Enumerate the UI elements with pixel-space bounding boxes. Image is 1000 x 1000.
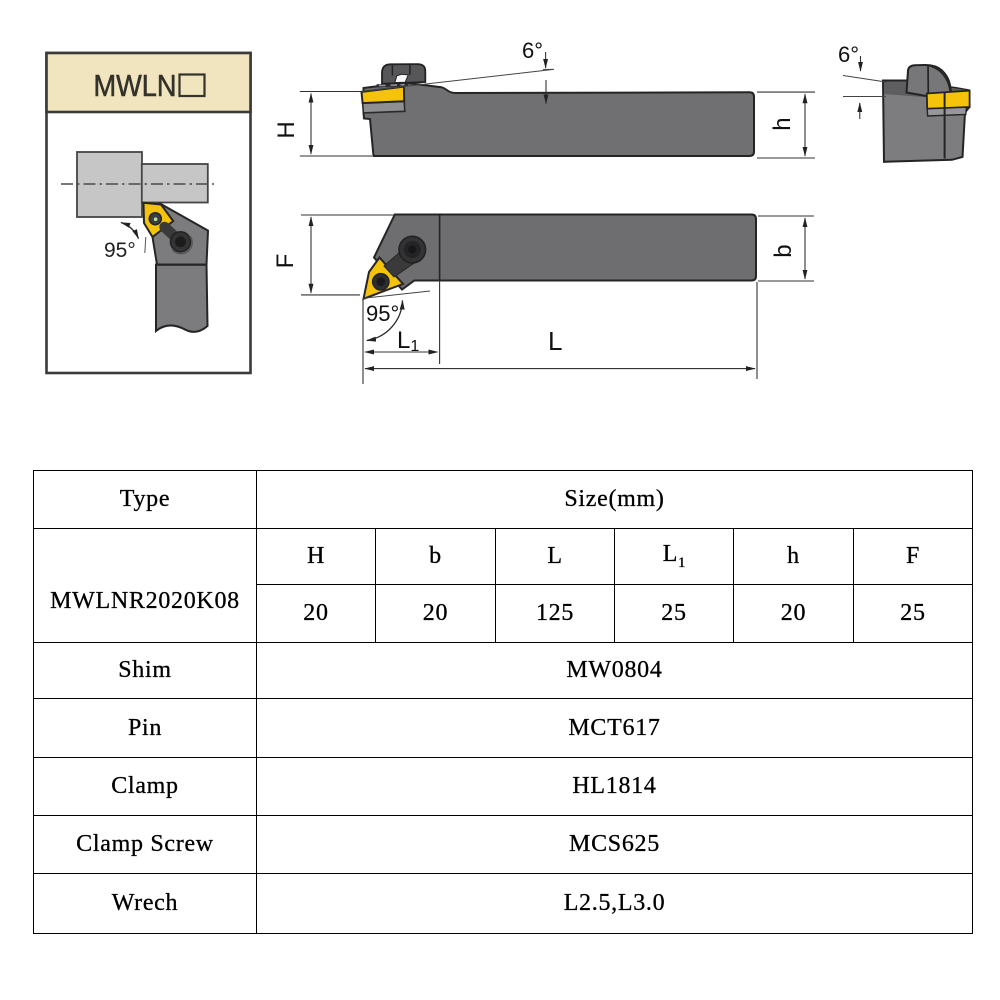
svg-text:MWLN: MWLN	[94, 68, 177, 103]
svg-text:95°: 95°	[366, 301, 399, 326]
svg-text:F: F	[272, 254, 299, 269]
svg-text:h: h	[769, 117, 796, 130]
svg-text:6°: 6°	[838, 42, 859, 67]
svg-text:H: H	[273, 121, 300, 138]
svg-text:L1: L1	[397, 327, 419, 355]
svg-text:6°: 6°	[522, 38, 543, 63]
svg-text:95°: 95°	[104, 239, 136, 262]
svg-text:b: b	[770, 244, 797, 257]
svg-text:L: L	[548, 326, 562, 356]
